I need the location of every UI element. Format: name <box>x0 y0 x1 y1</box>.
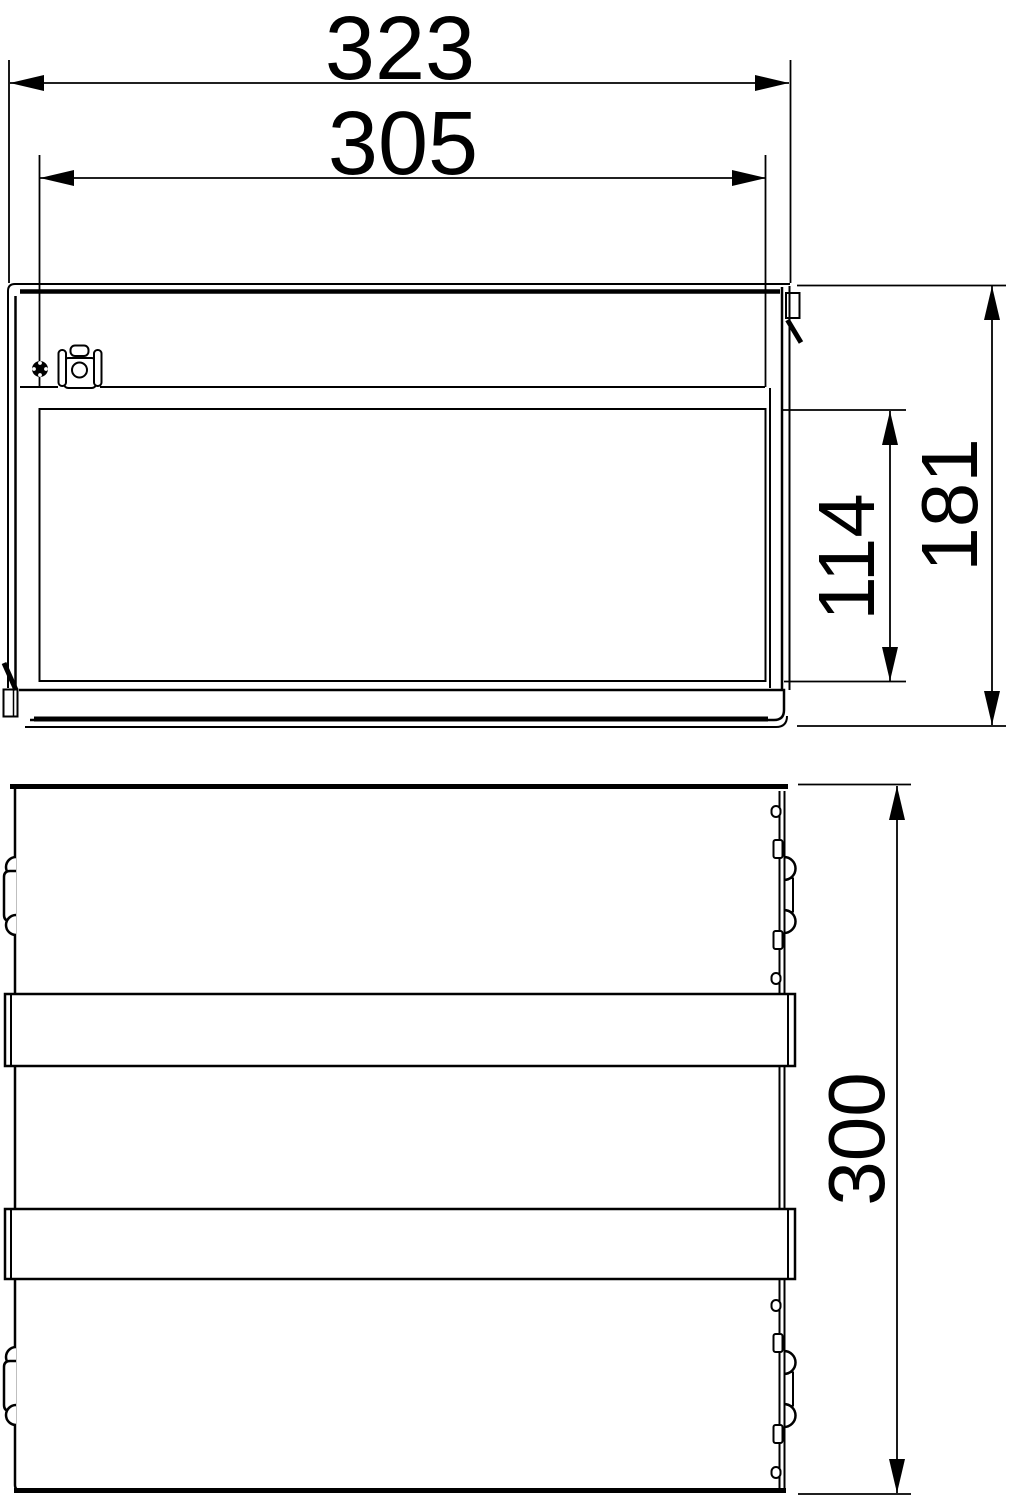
drawing-canvas: 323 305 114 181 <box>0 0 1009 1500</box>
dim-value-overall-depth: 300 <box>812 1072 901 1205</box>
technical-drawing-svg: 323 305 114 181 <box>0 0 1009 1500</box>
wall-bracket-bottom <box>4 1347 16 1425</box>
dim-value-overall-width: 323 <box>325 0 475 99</box>
dim-value-panel-height: 114 <box>802 493 891 621</box>
dim-value-panel-width: 305 <box>328 94 478 194</box>
screw-icon <box>32 361 48 377</box>
dim-value-overall-height: 181 <box>905 438 994 571</box>
cross-rail-upper <box>5 994 795 1066</box>
cross-rail-lower <box>5 1209 795 1279</box>
wall-bracket-top <box>4 857 16 935</box>
